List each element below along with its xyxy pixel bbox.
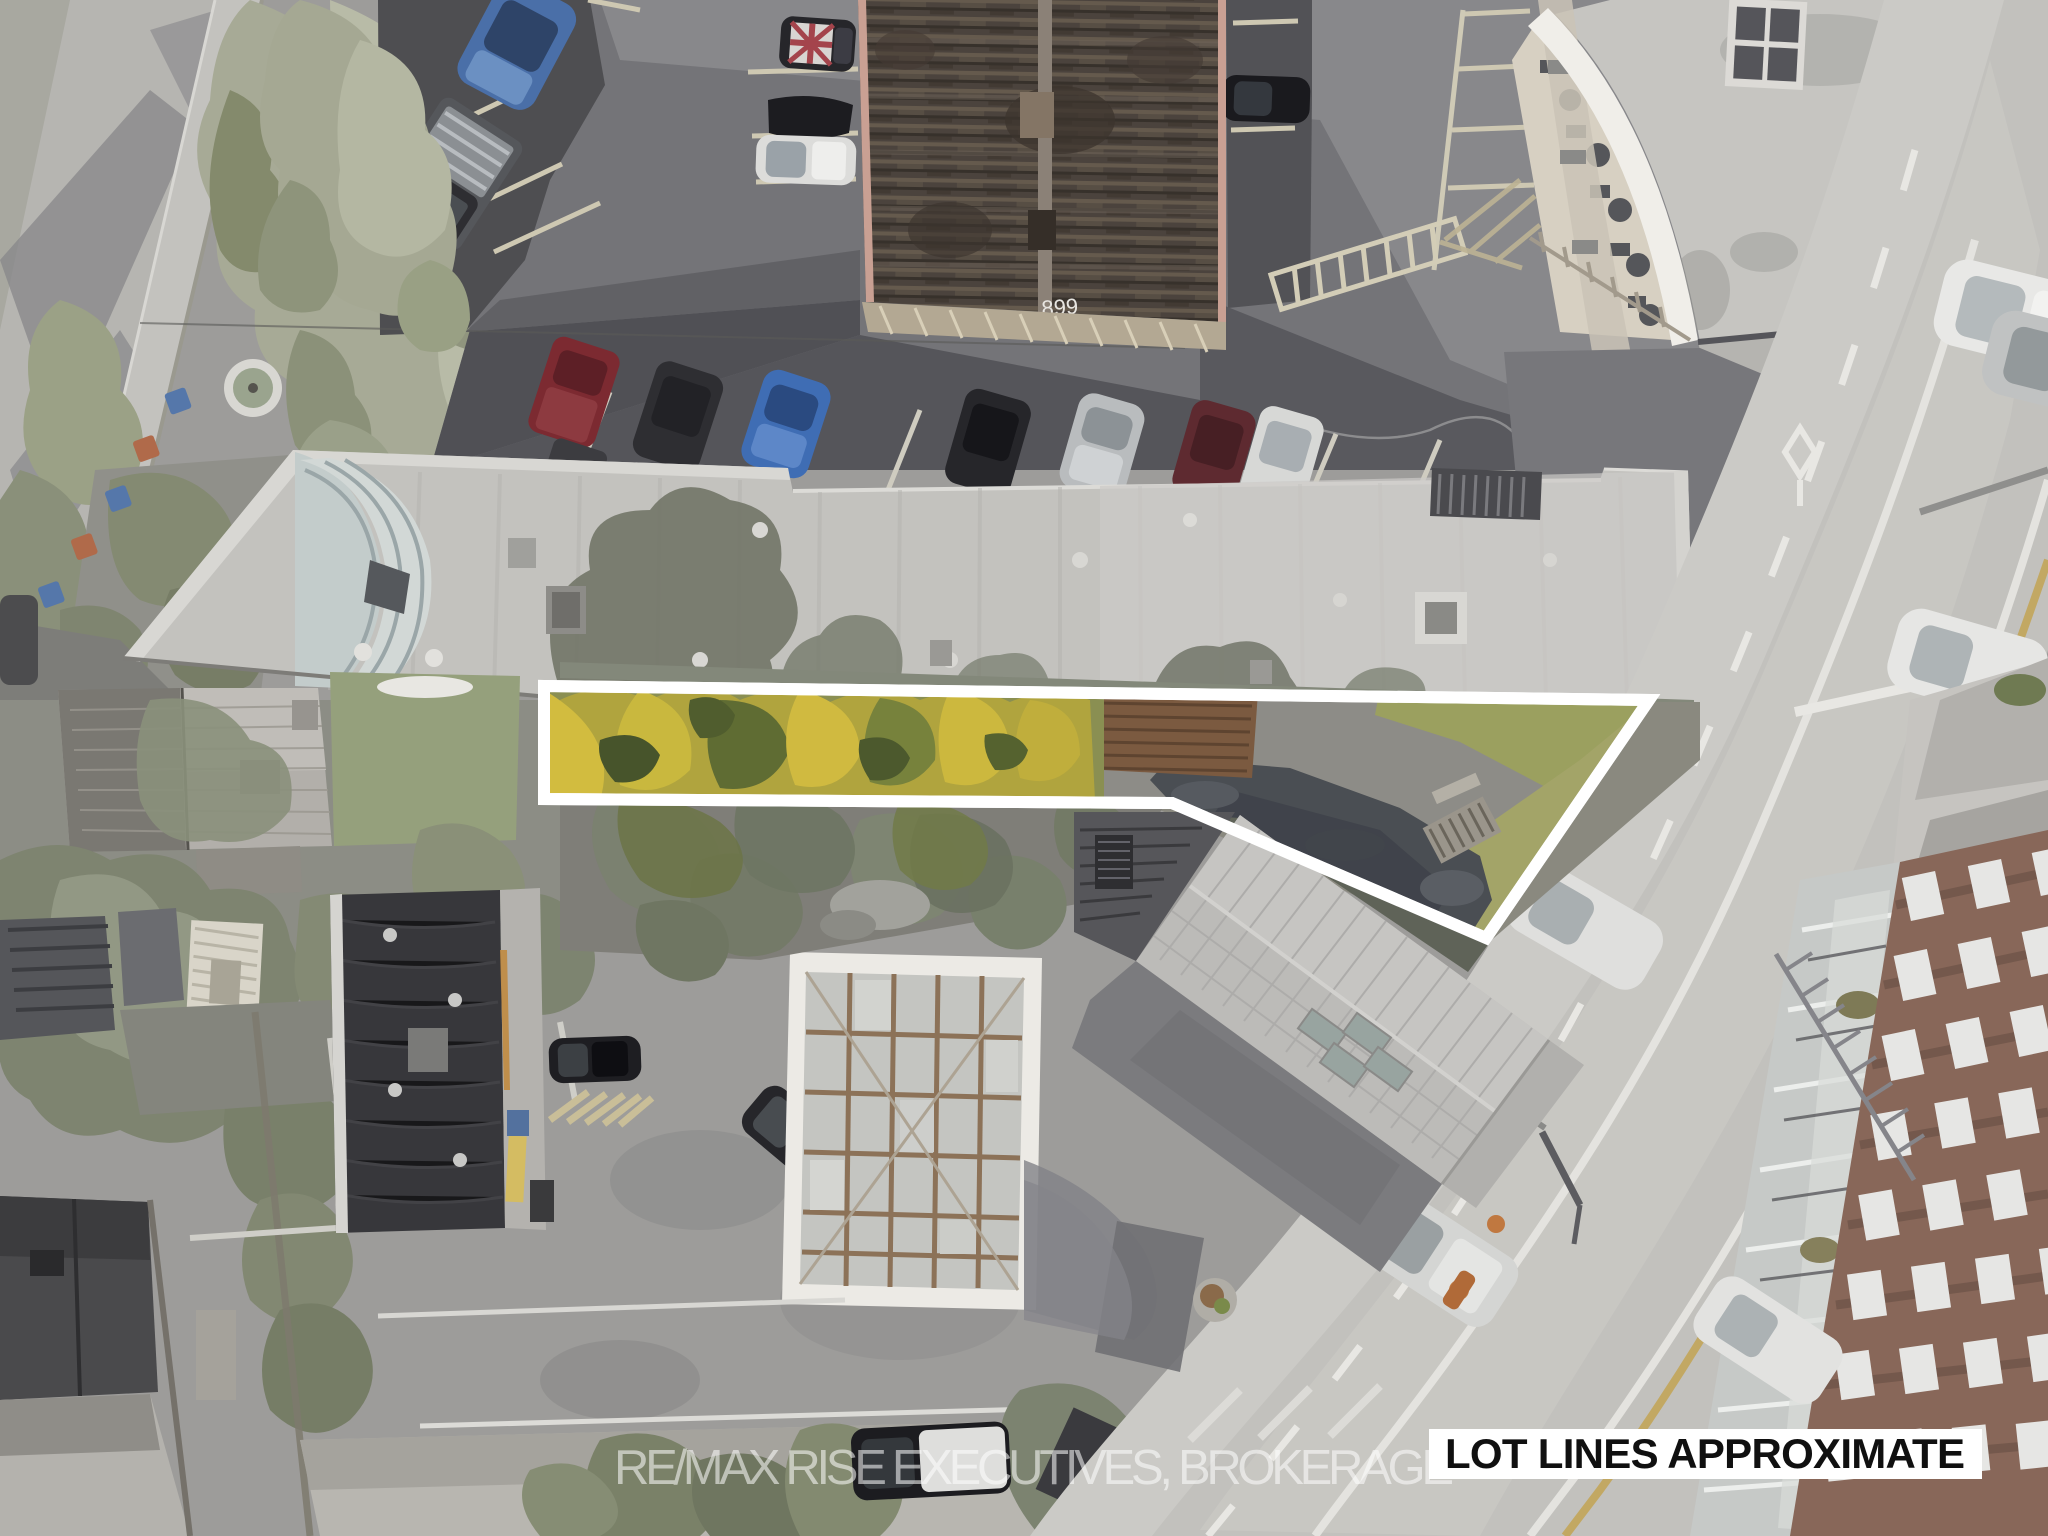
svg-text:LOT LINES APPROXIMATE: LOT LINES APPROXIMATE bbox=[1445, 1430, 1965, 1477]
svg-text:RE/MAX RISE EXECUTIVES, BROKER: RE/MAX RISE EXECUTIVES, BROKERAGE bbox=[614, 1441, 1454, 1495]
